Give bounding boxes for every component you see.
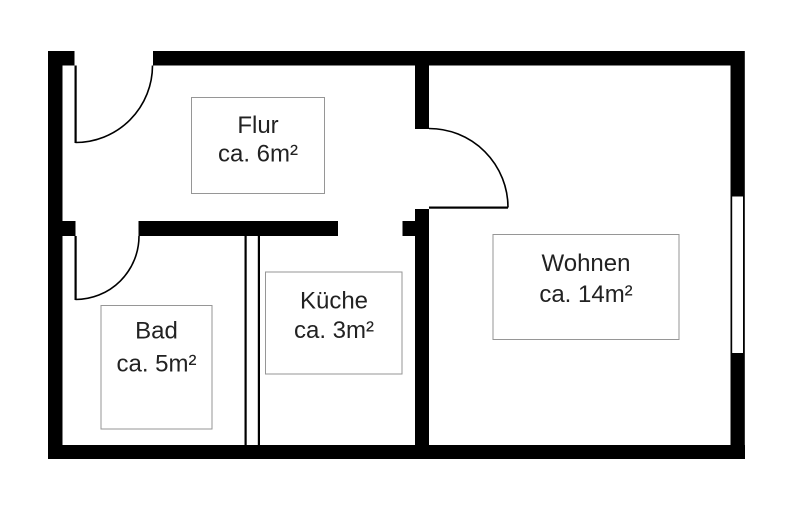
svg-text:Küche: Küche (300, 287, 368, 314)
svg-text:ca. 5m²: ca. 5m² (116, 351, 196, 378)
svg-text:ca. 14m²: ca. 14m² (539, 281, 632, 308)
svg-text:ca. 3m²: ca. 3m² (294, 317, 374, 344)
svg-text:Wohnen: Wohnen (542, 250, 631, 277)
svg-text:Flur: Flur (237, 112, 278, 139)
svg-text:Bad: Bad (135, 318, 178, 345)
svg-text:ca. 6m²: ca. 6m² (218, 141, 298, 168)
